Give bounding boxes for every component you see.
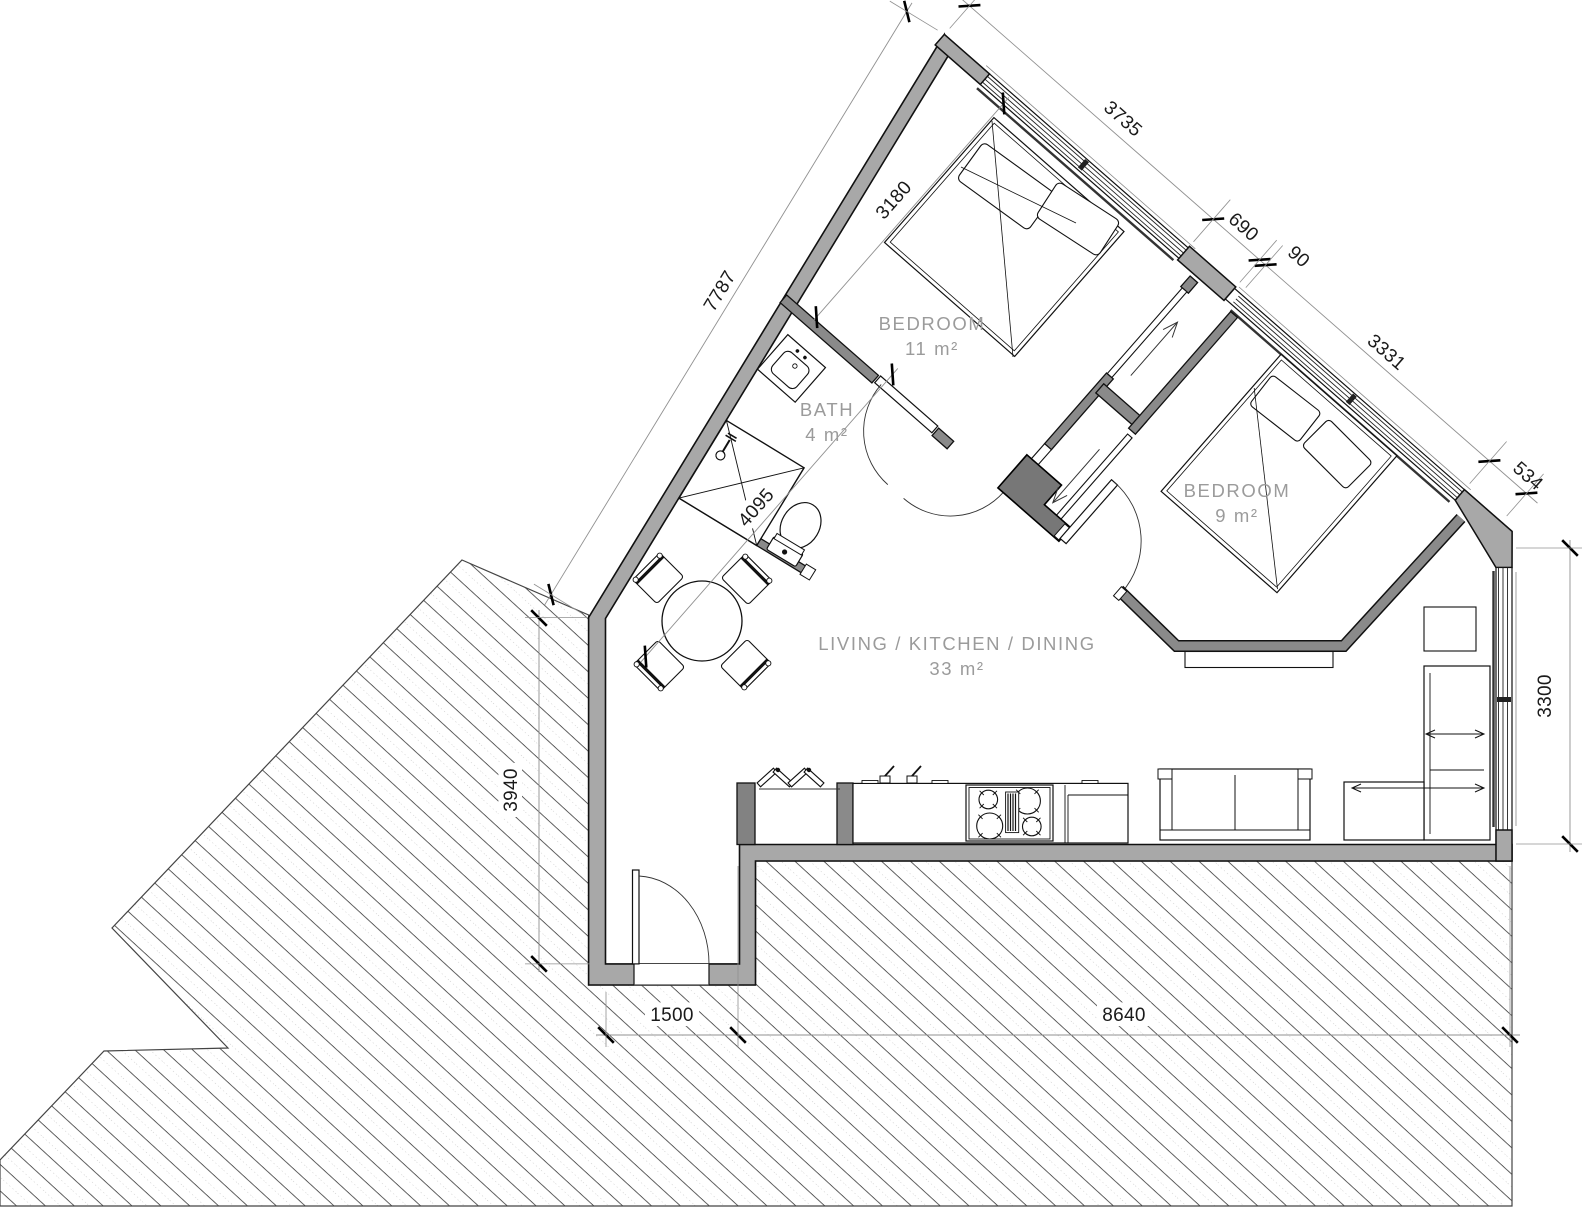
svg-text:3940: 3940: [501, 768, 522, 811]
svg-text:33 m²: 33 m²: [929, 658, 984, 679]
svg-text:BEDROOM: BEDROOM: [879, 313, 986, 334]
svg-text:11 m²: 11 m²: [905, 338, 959, 359]
svg-text:8640: 8640: [1102, 1005, 1145, 1026]
svg-text:1500: 1500: [650, 1005, 693, 1026]
svg-text:9 m²: 9 m²: [1215, 505, 1258, 526]
svg-text:BEDROOM: BEDROOM: [1184, 480, 1291, 501]
svg-text:BATH: BATH: [800, 399, 854, 420]
svg-text:3300: 3300: [1535, 674, 1556, 717]
svg-text:LIVING / KITCHEN / DINING: LIVING / KITCHEN / DINING: [818, 633, 1095, 654]
svg-text:4 m²: 4 m²: [805, 424, 848, 445]
